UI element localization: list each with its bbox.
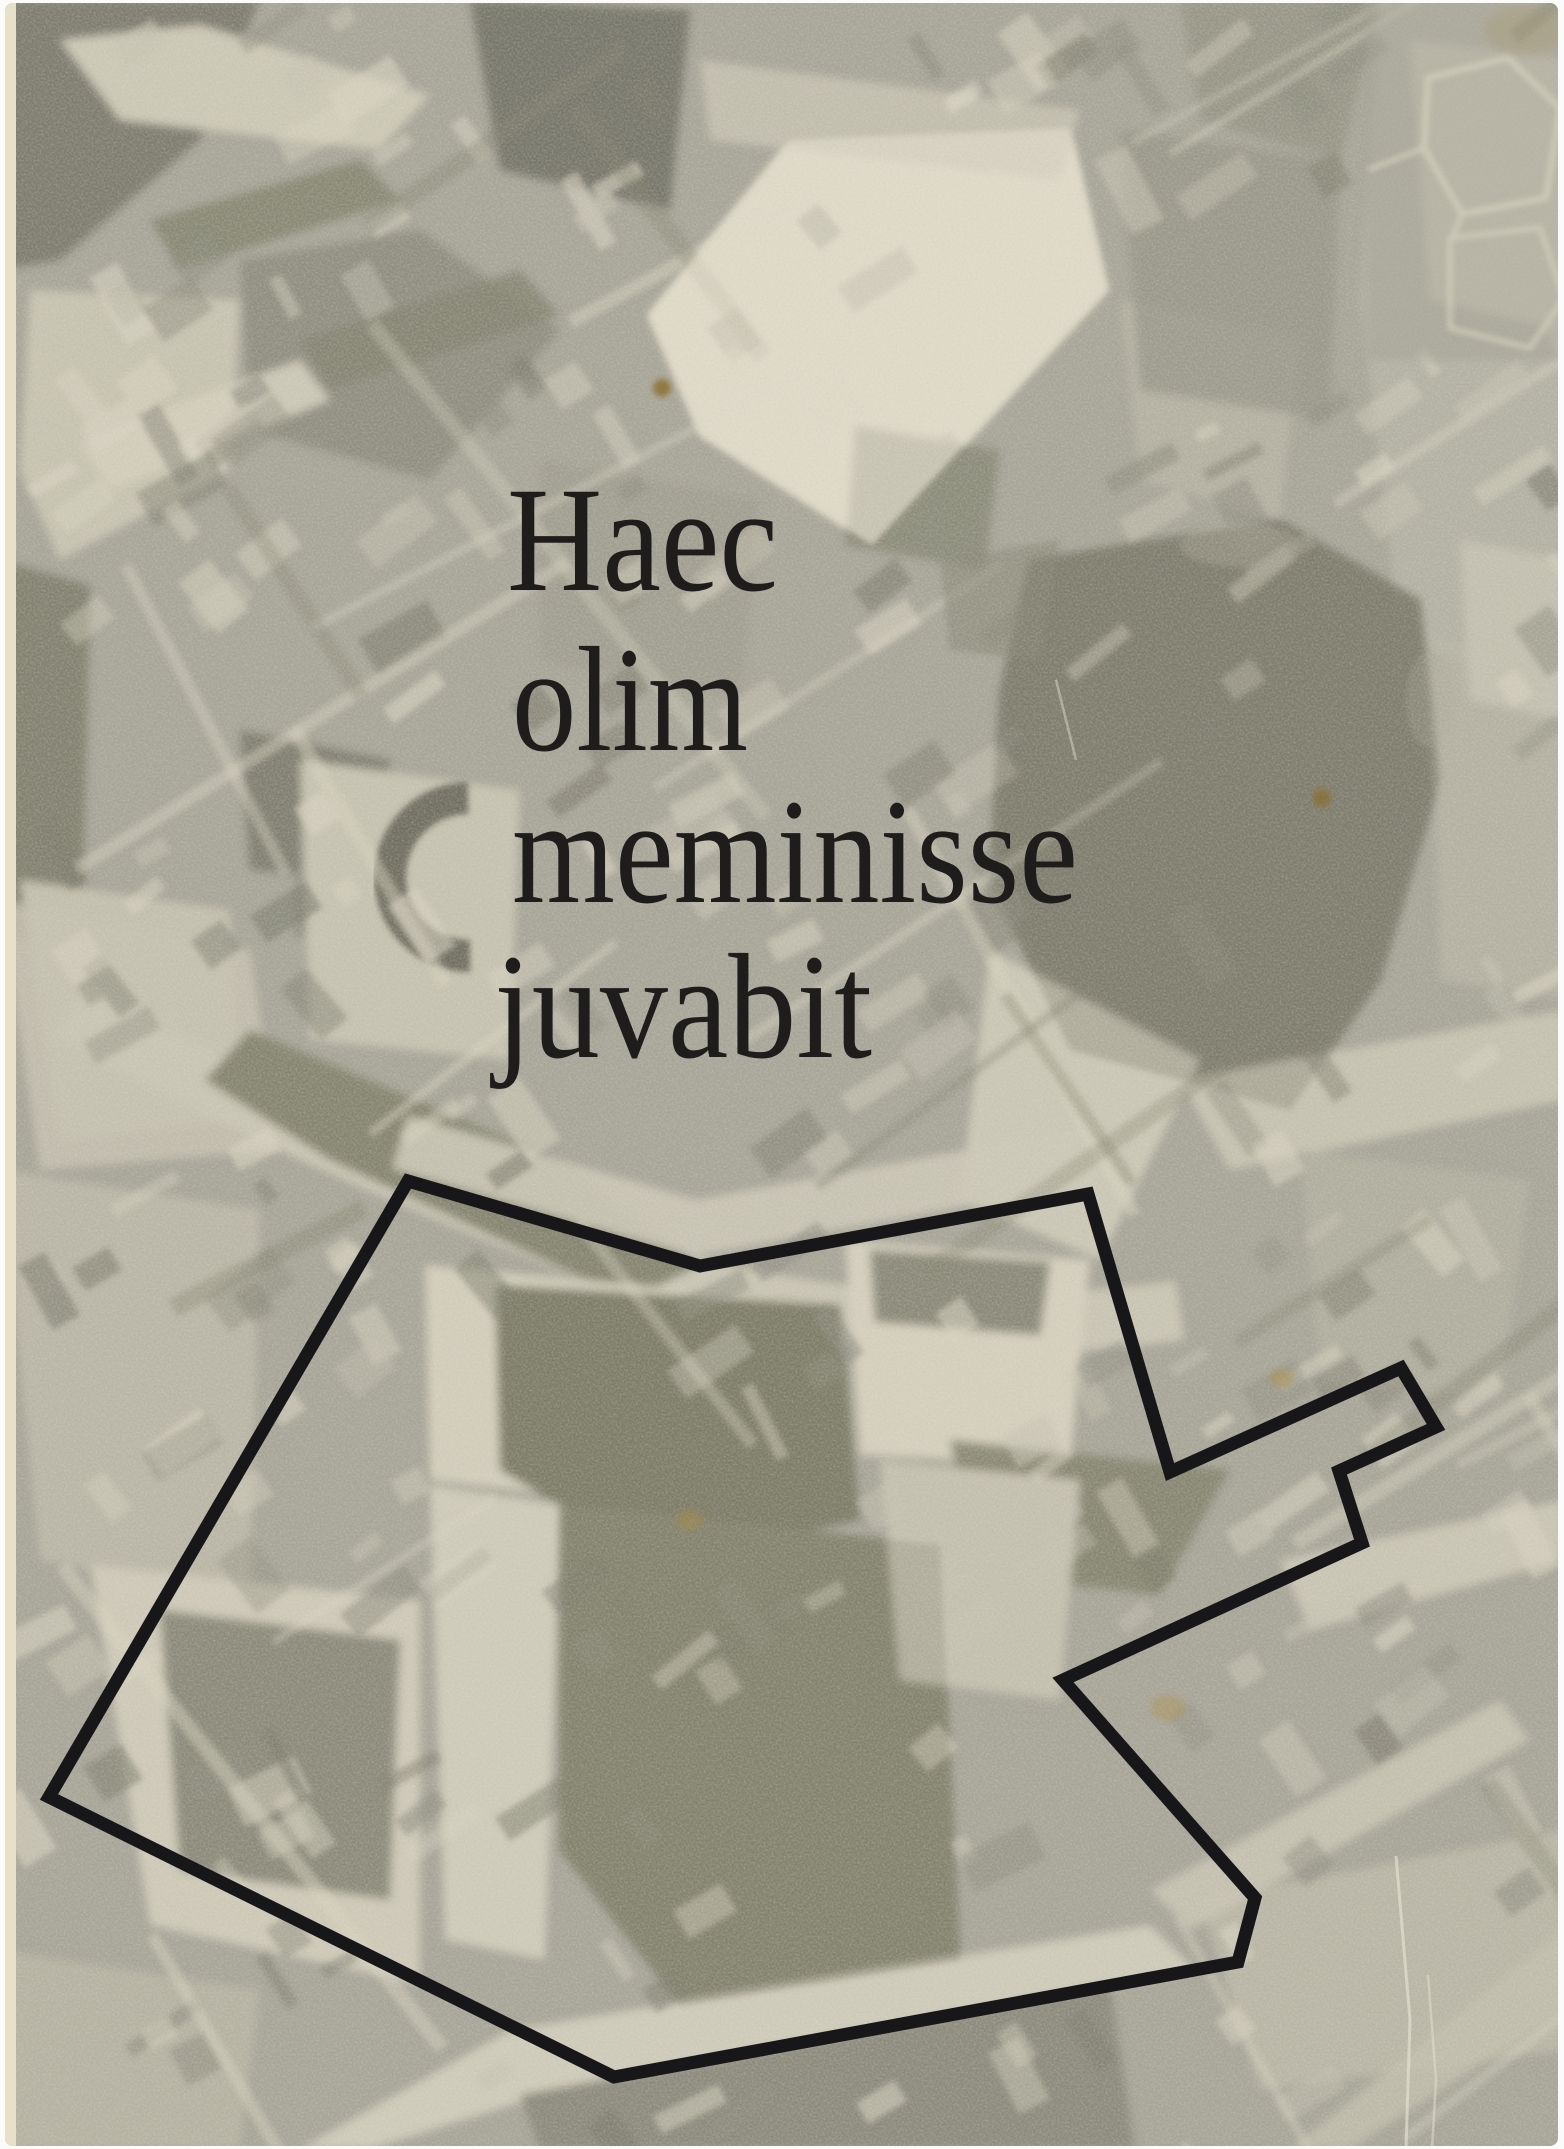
svg-text:meminisse: meminisse xyxy=(512,769,1078,935)
svg-text:olim: olim xyxy=(512,617,748,783)
svg-text:juvabit: juvabit xyxy=(489,924,872,1090)
svg-text:Haec: Haec xyxy=(507,457,778,623)
